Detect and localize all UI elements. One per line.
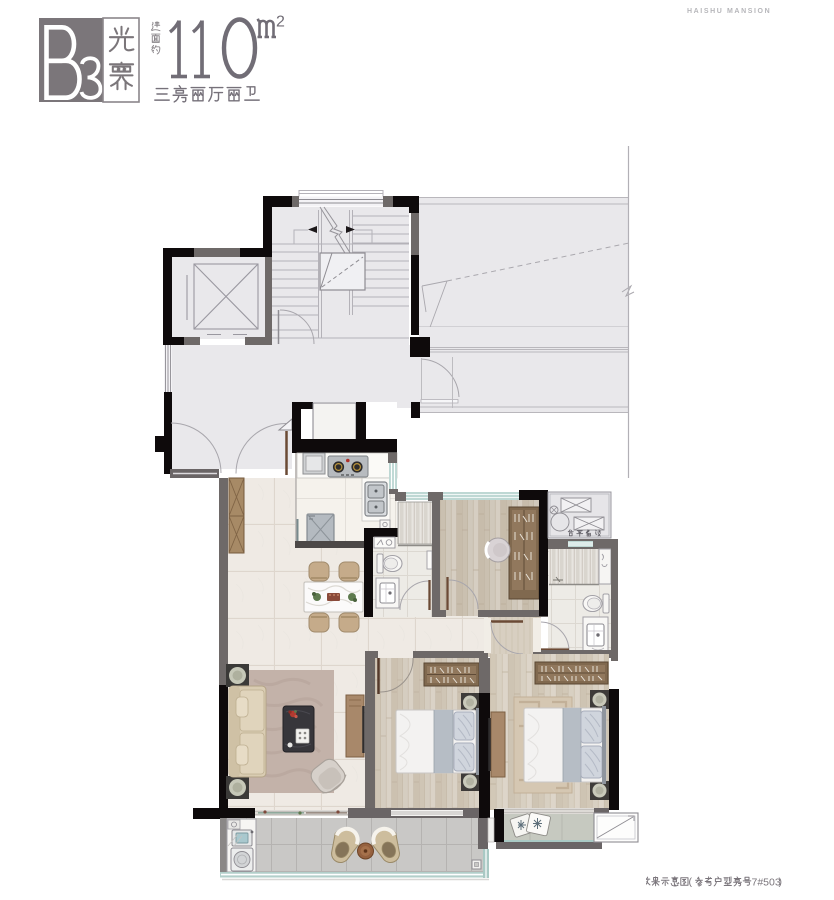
- svg-text:7#503: 7#503: [752, 877, 781, 889]
- svg-text:2: 2: [276, 14, 285, 31]
- svg-text:HAISHU MANSION: HAISHU MANSION: [687, 8, 771, 15]
- svg-text:): ): [779, 876, 783, 888]
- svg-text:(: (: [689, 876, 693, 888]
